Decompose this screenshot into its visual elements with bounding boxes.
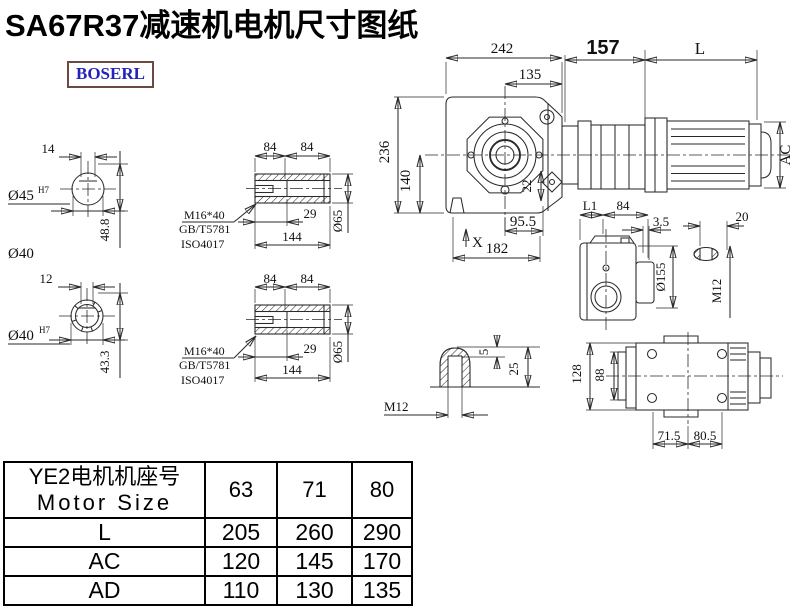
size-column-63: 63 <box>205 462 277 518</box>
dim-axis-height: 140 <box>398 170 414 193</box>
standard-2: ISO4017 <box>181 373 224 387</box>
table-cell: 170 <box>352 547 412 576</box>
motor-size-header-cell: YE2电机机座号 Motor Size <box>4 462 205 518</box>
row-label: L <box>4 518 205 547</box>
dim-shaft-width: 88 <box>592 369 607 382</box>
standard-2: ISO4017 <box>181 237 224 251</box>
table-cell: 145 <box>277 547 352 576</box>
front-view: 242 135 157 L 236 140 22 95.5 182 <box>377 37 794 262</box>
dim-overall-height: 236 <box>377 140 393 163</box>
dim-diameter: Ø45 <box>8 188 34 204</box>
dim-key-width: 14 <box>42 141 56 156</box>
table-cell: 290 <box>352 518 412 547</box>
dim-gap: 3.5 <box>653 214 669 229</box>
x-mark: X <box>472 235 483 251</box>
size-column-71: 71 <box>277 462 352 518</box>
thread-callout: M16*40 <box>184 344 225 358</box>
drawing-sheet: 14 Ø45 H7 48.8 Ø40 <box>0 0 800 609</box>
hollow-shaft-view-bottom: 84 84 M16*40 GB/T5781 ISO4017 29 144 Ø65 <box>179 271 353 387</box>
dim-seg2: 84 <box>301 139 315 154</box>
thread-callout: M12 <box>709 279 724 304</box>
dim-key: 22 <box>519 180 534 193</box>
motor-size-table: YE2电机机座号 Motor Size 63 71 80 L 205 260 2… <box>3 461 413 606</box>
dim-height: 48.8 <box>97 219 112 242</box>
dim-base-length: 182 <box>486 241 509 257</box>
bottom-view: 128 88 71.5 80.5 <box>569 332 783 449</box>
table-cell: 135 <box>352 576 412 605</box>
page-title: SA67R37减速机电机尺寸图纸 <box>5 0 418 45</box>
table-row-AD: AD 110 130 135 <box>4 576 412 605</box>
dim-length: 25 <box>506 363 521 376</box>
boserl-logo: BOSERL <box>67 61 154 88</box>
dim-height: 128 <box>569 364 584 384</box>
table-row-L: L 205 260 290 <box>4 518 412 547</box>
dim-key-width: 12 <box>40 271 53 286</box>
plug-detail: 5 25 M12 <box>384 335 540 418</box>
dim-extra-diameter: Ø40 <box>8 246 34 262</box>
table-cell: 120 <box>205 547 277 576</box>
dim-center-to-flange: 135 <box>519 67 542 83</box>
table-header-row: YE2电机机座号 Motor Size 63 71 80 <box>4 462 412 518</box>
dim-seg2: 84 <box>301 271 315 286</box>
thread-callout: M16*40 <box>184 208 225 222</box>
dim-diameter: Ø65 <box>330 210 345 232</box>
dim-foot-offset: 95.5 <box>510 214 536 230</box>
table-cell: 260 <box>277 518 352 547</box>
row-label: AD <box>4 576 205 605</box>
dim-length: 144 <box>282 229 302 244</box>
dim-diameter: Ø65 <box>330 341 345 363</box>
standard-1: GB/T5781 <box>179 358 230 372</box>
dim-length: 144 <box>282 362 302 377</box>
dim-gear-stage-length: 157 <box>586 37 619 59</box>
motor-size-header-en: Motor Size <box>5 490 204 516</box>
dim-tip-depth: 5 <box>476 349 491 356</box>
side-view: L1 84 3.5 Ø155 20 M12 <box>580 198 749 331</box>
dim-width: 84 <box>617 198 631 213</box>
dim-height: 43.3 <box>97 351 112 374</box>
row-label: AC <box>4 547 205 576</box>
dim-motor-diameter: AC <box>778 145 794 166</box>
dim-diameter: Ø40 <box>8 328 34 344</box>
dim-flange-diameter: Ø155 <box>653 263 668 292</box>
hollow-shaft-view-top: 84 84 M16*40 GB/T5781 ISO4017 29 144 Ø65 <box>179 139 353 251</box>
dim-overall-width: 242 <box>491 41 514 57</box>
thread-callout: M12 <box>384 399 409 414</box>
dim-l1: L1 <box>583 198 597 213</box>
table-cell: 130 <box>277 576 352 605</box>
dim-bore-depth: 29 <box>304 206 317 221</box>
size-column-80: 80 <box>352 462 412 518</box>
dim-bore-depth: 29 <box>304 341 317 356</box>
motor-size-header-cn: YE2电机机座号 <box>5 464 204 490</box>
dim-motor-length: L <box>695 39 705 58</box>
table-cell: 110 <box>205 576 277 605</box>
dim-right-span: 80.5 <box>694 428 717 443</box>
table-cell: 205 <box>205 518 277 547</box>
dim-seg1: 84 <box>264 271 278 286</box>
dim-tolerance: H7 <box>39 325 50 335</box>
dim-tolerance: H7 <box>38 185 49 195</box>
table-row-AC: AC 120 145 170 <box>4 547 412 576</box>
dim-seg1: 84 <box>264 139 278 154</box>
shaft-end-view-bottom: 12 Ø40 H7 43.3 <box>8 271 128 378</box>
dim-boss: 20 <box>736 209 749 224</box>
dim-left-span: 71.5 <box>658 428 681 443</box>
standard-1: GB/T5781 <box>179 222 230 236</box>
shaft-end-view-top: 14 Ø45 H7 48.8 Ø40 <box>8 141 128 262</box>
